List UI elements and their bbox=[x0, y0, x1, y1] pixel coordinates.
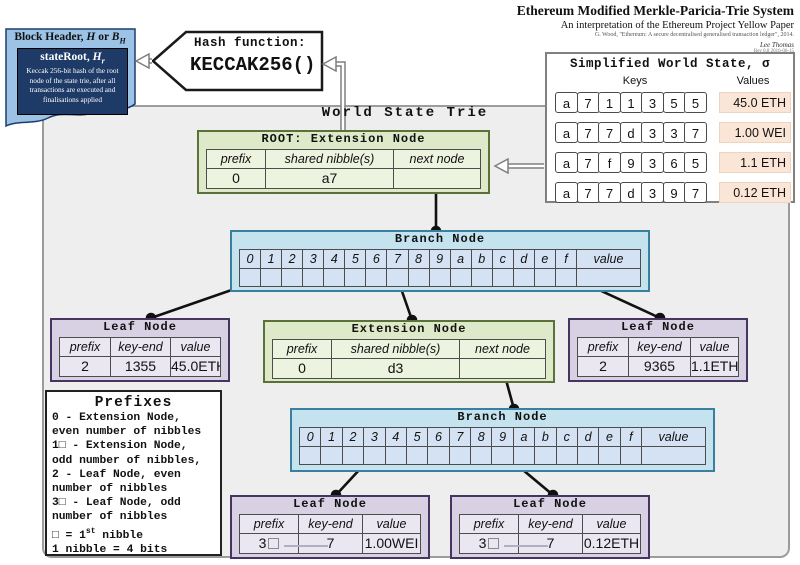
node-value-row bbox=[299, 447, 706, 465]
branch-2-value-9 bbox=[492, 447, 513, 465]
page-title: Ethereum Modified Merkle-Paricia-Trie Sy… bbox=[374, 3, 794, 19]
nibble-indicator-line bbox=[504, 545, 548, 547]
root-extension-value-0: 0 bbox=[206, 169, 266, 189]
key-nibble-cell: d bbox=[620, 182, 643, 203]
leaf-bottom-left-table: prefixkey-endvalue371.00WEI bbox=[239, 514, 421, 554]
key-nibble-cell: 7 bbox=[577, 92, 600, 113]
root-extension-col-shared nibble(s): shared nibble(s) bbox=[266, 149, 394, 169]
branch-2-value-4 bbox=[386, 447, 407, 465]
branch-1-col-0: 0 bbox=[239, 249, 261, 269]
branch-1-col-3: 3 bbox=[303, 249, 324, 269]
root-extension-table: prefixshared nibble(s)next node0a7 bbox=[206, 149, 481, 189]
key-nibble-cell: 3 bbox=[641, 92, 664, 113]
branch-1-col-c: c bbox=[493, 249, 514, 269]
key-nibble-cell: 5 bbox=[684, 92, 707, 113]
branch-2-col-3: 3 bbox=[364, 427, 385, 447]
node-header-row: 0123456789abcdefvalue bbox=[299, 427, 706, 447]
stateroot-description: Keccak 256-bit hash of the root node of … bbox=[18, 65, 127, 104]
branch-1-col-b: b bbox=[472, 249, 493, 269]
leaf-bottom-right-col-key-end: key-end bbox=[519, 514, 583, 534]
node-header-row: prefixkey-endvalue bbox=[577, 337, 739, 357]
extension-mid-value-2 bbox=[460, 359, 546, 379]
prefix-legend-line: 0 - Extension Node, bbox=[52, 411, 215, 425]
key-nibble-cell: 1 bbox=[598, 92, 621, 113]
branch-2-col-4: 4 bbox=[386, 427, 407, 447]
leaf-bottom-right-value-2: 0.12ETH bbox=[583, 534, 641, 554]
leaf-right-col-value: value bbox=[691, 337, 739, 357]
leaf-left-value-2: 45.0ETH bbox=[171, 357, 221, 377]
branch-2-value-13 bbox=[578, 447, 599, 465]
key-nibble-cell: 3 bbox=[641, 122, 664, 143]
key-nibble-cell: 1 bbox=[620, 92, 643, 113]
branch-2-value-2 bbox=[343, 447, 364, 465]
root-extension-title: ROOT: Extension Node bbox=[199, 132, 488, 149]
key-nibble-cell: 7 bbox=[577, 182, 600, 203]
leaf-bottom-left-col-key-end: key-end bbox=[299, 514, 363, 534]
world-state-row: a77d3371.00 WEI bbox=[555, 122, 791, 144]
leaf-bottom-right-title: Leaf Node bbox=[452, 497, 648, 514]
leaf-left-node: Leaf Nodeprefixkey-endvalue2135545.0ETH bbox=[50, 318, 230, 382]
leaf-bottom-left-node: Leaf Nodeprefixkey-endvalue371.00WEI bbox=[230, 495, 430, 559]
leaf-left-value-1: 1355 bbox=[111, 357, 171, 377]
world-state-row: a71135545.0 ETH bbox=[555, 92, 791, 114]
leaf-bottom-right-node: Leaf Nodeprefixkey-endvalue370.12ETH bbox=[450, 495, 650, 559]
key-cells: a77d397 bbox=[555, 182, 707, 203]
branch-1-col-e: e bbox=[535, 249, 556, 269]
leaf-left-table: prefixkey-endvalue2135545.0ETH bbox=[59, 337, 221, 377]
key-nibble-cell: a bbox=[555, 182, 578, 203]
node-header-row: prefixkey-endvalue bbox=[59, 337, 221, 357]
extension-mid-value-0: 0 bbox=[272, 359, 332, 379]
citation: G. Wood, "Ethereum: A secure decentralis… bbox=[374, 32, 794, 38]
branch-2-value-10 bbox=[514, 447, 535, 465]
leaf-left-title: Leaf Node bbox=[52, 320, 228, 337]
leaf-bottom-right-table: prefixkey-endvalue370.12ETH bbox=[459, 514, 641, 554]
leaf-left-col-prefix: prefix bbox=[59, 337, 111, 357]
key-nibble-cell: 7 bbox=[577, 152, 600, 173]
branch-2-col-b: b bbox=[535, 427, 556, 447]
key-nibble-cell: 7 bbox=[684, 182, 707, 203]
hash-to-stateroot-arrow bbox=[136, 54, 152, 68]
node-header-row: prefixkey-endvalue bbox=[459, 514, 641, 534]
branch-2-col-7: 7 bbox=[450, 427, 471, 447]
branch-2-col-e: e bbox=[599, 427, 620, 447]
account-value: 45.0 ETH bbox=[719, 92, 791, 113]
node-value-row: 293651.1ETH bbox=[577, 357, 739, 377]
branch-2-col-c: c bbox=[557, 427, 578, 447]
branch-1-col-f: f bbox=[556, 249, 577, 269]
key-nibble-cell: 9 bbox=[663, 182, 686, 203]
diagram-canvas: World State Trie Ethereum Modified Merkl… bbox=[0, 0, 800, 565]
node-value-row: 2135545.0ETH bbox=[59, 357, 221, 377]
key-nibble-cell: a bbox=[555, 92, 578, 113]
leaf-bottom-right-col-value: value bbox=[583, 514, 641, 534]
trie-label: World State Trie bbox=[290, 105, 520, 121]
leaf-right-title: Leaf Node bbox=[570, 320, 746, 337]
leaf-left-value-0: 2 bbox=[59, 357, 111, 377]
extension-mid-col-next node: next node bbox=[460, 339, 546, 359]
branch-1-value-4 bbox=[324, 269, 345, 287]
prefix-legend-line: number of nibbles bbox=[52, 510, 215, 524]
branch-1-value-5 bbox=[345, 269, 366, 287]
nibble-placeholder-square bbox=[488, 538, 499, 549]
branch-2-value-7 bbox=[450, 447, 471, 465]
key-cells: a711355 bbox=[555, 92, 707, 113]
page-subtitle: An interpretation of the Ethereum Projec… bbox=[374, 20, 794, 31]
branch-2-col-9: 9 bbox=[492, 427, 513, 447]
nibble-indicator-line bbox=[284, 545, 328, 547]
node-value-row: 0d3 bbox=[272, 359, 546, 379]
key-nibble-cell: 5 bbox=[663, 92, 686, 113]
key-nibble-cell: 7 bbox=[598, 122, 621, 143]
key-nibble-cell: 7 bbox=[577, 122, 600, 143]
key-nibble-cell: f bbox=[598, 152, 621, 173]
node-header-row: prefixshared nibble(s)next node bbox=[206, 149, 481, 169]
branch-1-value-8 bbox=[409, 269, 430, 287]
key-nibble-cell: a bbox=[555, 152, 578, 173]
prefixes-title: Prefixes bbox=[52, 395, 215, 411]
leaf-right-value-2: 1.1ETH bbox=[691, 357, 739, 377]
key-nibble-cell: 7 bbox=[598, 182, 621, 203]
branch-1-value-9 bbox=[430, 269, 451, 287]
branch-2-value-15 bbox=[621, 447, 642, 465]
branch-2-col-d: d bbox=[578, 427, 599, 447]
branch-1-col-d: d bbox=[514, 249, 535, 269]
author: Lee Thomas bbox=[374, 41, 794, 49]
key-nibble-cell: 9 bbox=[620, 152, 643, 173]
key-nibble-cell: 3 bbox=[641, 152, 664, 173]
prefix-legend-line: 2 - Leaf Node, even bbox=[52, 468, 215, 482]
extension-mid-node: Extension Nodeprefixshared nibble(s)next… bbox=[263, 320, 555, 383]
key-nibble-cell: d bbox=[620, 122, 643, 143]
key-nibble-cell: 6 bbox=[663, 152, 686, 173]
node-header-row: 0123456789abcdefvalue bbox=[239, 249, 641, 269]
worldstate-to-root-arrow bbox=[495, 159, 544, 173]
leaf-right-col-prefix: prefix bbox=[577, 337, 629, 357]
branch-1-col-a: a bbox=[451, 249, 472, 269]
branch-1-value-13 bbox=[514, 269, 535, 287]
branch-1-value-3 bbox=[303, 269, 324, 287]
nibble-placeholder-square bbox=[268, 538, 279, 549]
leaf-bottom-left-title: Leaf Node bbox=[232, 497, 428, 514]
leaf-bottom-right-col-prefix: prefix bbox=[459, 514, 519, 534]
prefix-legend-line: odd number of nibbles, bbox=[52, 454, 215, 468]
account-value: 0.12 ETH bbox=[719, 182, 791, 203]
prefixes-lines: 0 - Extension Node,even number of nibble… bbox=[52, 411, 215, 557]
key-nibble-cell: a bbox=[555, 122, 578, 143]
branch-1-col-1: 1 bbox=[261, 249, 282, 269]
world-state-panel: Simplified World State, σ Keys Values a7… bbox=[545, 52, 795, 203]
prefix-legend-line: 3□ - Leaf Node, odd bbox=[52, 496, 215, 510]
key-cells: a77d337 bbox=[555, 122, 707, 143]
block-header-or: or bbox=[95, 31, 111, 43]
prefix-legend-line: 1□ - Extension Node, bbox=[52, 439, 215, 453]
branch-2-value-0 bbox=[299, 447, 321, 465]
key-nibble-cell: 5 bbox=[684, 152, 707, 173]
root-extension-node: ROOT: Extension Nodeprefixshared nibble(… bbox=[197, 130, 490, 194]
prefix-legend-line: even number of nibbles bbox=[52, 425, 215, 439]
prefix-legend-line: □ = 1st nibble bbox=[52, 525, 215, 543]
branch-1-value-16 bbox=[577, 269, 641, 287]
leaf-left-col-key-end: key-end bbox=[111, 337, 171, 357]
root-extension-value-1: a7 bbox=[266, 169, 394, 189]
node-value-row bbox=[239, 269, 641, 287]
branch-1-title: Branch Node bbox=[232, 232, 648, 249]
branch-2-col-value: value bbox=[642, 427, 706, 447]
node-header-row: prefixkey-endvalue bbox=[239, 514, 421, 534]
branch-1-col-6: 6 bbox=[366, 249, 387, 269]
stateroot-title: stateRoot, Hr bbox=[18, 51, 127, 65]
node-value-row: 370.12ETH bbox=[459, 534, 641, 554]
node-value-row: 371.00WEI bbox=[239, 534, 421, 554]
branch-1-col-7: 7 bbox=[387, 249, 408, 269]
key-nibble-cell: 7 bbox=[684, 122, 707, 143]
leaf-bottom-right-value-0: 3 bbox=[459, 534, 519, 554]
root-extension-value-2 bbox=[394, 169, 481, 189]
leaf-left-col-value: value bbox=[171, 337, 221, 357]
branch-1-col-9: 9 bbox=[430, 249, 451, 269]
leaf-bottom-left-value-1: 7 bbox=[299, 534, 363, 554]
branch-1-value-6 bbox=[366, 269, 387, 287]
branch-2-col-0: 0 bbox=[299, 427, 321, 447]
stateroot-box: stateRoot, Hr Keccak 256-bit hash of the… bbox=[17, 48, 128, 115]
account-value: 1.1 ETH bbox=[719, 152, 791, 173]
extension-mid-title: Extension Node bbox=[265, 322, 553, 339]
branch-1-value-11 bbox=[472, 269, 493, 287]
key-cells: a7f9365 bbox=[555, 152, 707, 173]
leaf-right-col-key-end: key-end bbox=[629, 337, 691, 357]
extension-mid-col-shared nibble(s): shared nibble(s) bbox=[332, 339, 460, 359]
branch-1-node: Branch Node0123456789abcdefvalue bbox=[230, 230, 650, 292]
branch-1-col-5: 5 bbox=[345, 249, 366, 269]
hash-function-name: KECCAK256() bbox=[190, 54, 322, 76]
world-state-row: a7f93651.1 ETH bbox=[555, 152, 791, 174]
branch-1-value-14 bbox=[535, 269, 556, 287]
block-header-title-text: Block Header, bbox=[14, 31, 86, 43]
root-extension-col-prefix: prefix bbox=[206, 149, 266, 169]
branch-1-value-7 bbox=[387, 269, 408, 287]
world-state-row: a77d3970.12 ETH bbox=[555, 182, 791, 204]
branch-1-col-4: 4 bbox=[324, 249, 345, 269]
values-header: Values bbox=[717, 75, 789, 87]
leaf-bottom-left-value-2: 1.00WEI bbox=[363, 534, 421, 554]
extension-mid-value-1: d3 bbox=[332, 359, 460, 379]
hash-banner: Hash function: KECCAK256() bbox=[186, 36, 322, 76]
leaf-right-value-0: 2 bbox=[577, 357, 629, 377]
prefixes-legend: Prefixes 0 - Extension Node,even number … bbox=[45, 390, 222, 556]
keys-header: Keys bbox=[555, 75, 715, 87]
block-header-title: Block Header, H or BH bbox=[8, 31, 132, 45]
branch-2-value-5 bbox=[407, 447, 428, 465]
key-nibble-cell: 3 bbox=[641, 182, 664, 203]
hash-function-label: Hash function: bbox=[194, 36, 322, 50]
branch-1-value-1 bbox=[261, 269, 282, 287]
leaf-right-table: prefixkey-endvalue293651.1ETH bbox=[577, 337, 739, 377]
world-state-title: Simplified World State, σ bbox=[547, 57, 793, 71]
prefix-legend-line: number of nibbles bbox=[52, 482, 215, 496]
root-extension-col-next node: next node bbox=[394, 149, 481, 169]
branch-1-value-10 bbox=[451, 269, 472, 287]
branch-1-value-15 bbox=[556, 269, 577, 287]
branch-1-col-2: 2 bbox=[282, 249, 303, 269]
branch-1-value-2 bbox=[282, 269, 303, 287]
branch-1-value-0 bbox=[239, 269, 261, 287]
leaf-right-value-1: 9365 bbox=[629, 357, 691, 377]
branch-1-table: 0123456789abcdefvalue bbox=[239, 249, 641, 287]
branch-2-value-1 bbox=[321, 447, 342, 465]
extension-mid-col-prefix: prefix bbox=[272, 339, 332, 359]
leaf-bottom-left-col-value: value bbox=[363, 514, 421, 534]
branch-1-col-8: 8 bbox=[409, 249, 430, 269]
title-block: Ethereum Modified Merkle-Paricia-Trie Sy… bbox=[374, 3, 794, 54]
branch-2-value-8 bbox=[471, 447, 492, 465]
branch-1-value-12 bbox=[493, 269, 514, 287]
branch-1-col-value: value bbox=[577, 249, 641, 269]
account-value: 1.00 WEI bbox=[719, 122, 791, 143]
prefix-legend-line: 1 nibble = 4 bits bbox=[52, 543, 215, 557]
leaf-right-node: Leaf Nodeprefixkey-endvalue293651.1ETH bbox=[568, 318, 748, 382]
branch-2-col-6: 6 bbox=[428, 427, 449, 447]
extension-mid-table: prefixshared nibble(s)next node0d3 bbox=[272, 339, 546, 379]
key-nibble-cell: 3 bbox=[663, 122, 686, 143]
branch-2-value-16 bbox=[642, 447, 706, 465]
node-value-row: 0a7 bbox=[206, 169, 481, 189]
branch-2-value-12 bbox=[557, 447, 578, 465]
branch-2-title: Branch Node bbox=[292, 410, 713, 427]
branch-2-node: Branch Node0123456789abcdefvalue bbox=[290, 408, 715, 472]
branch-2-col-8: 8 bbox=[471, 427, 492, 447]
branch-2-value-3 bbox=[364, 447, 385, 465]
leaf-bottom-right-value-1: 7 bbox=[519, 534, 583, 554]
branch-2-value-14 bbox=[599, 447, 620, 465]
branch-2-col-f: f bbox=[621, 427, 642, 447]
node-header-row: prefixshared nibble(s)next node bbox=[272, 339, 546, 359]
branch-2-col-2: 2 bbox=[343, 427, 364, 447]
branch-2-col-5: 5 bbox=[407, 427, 428, 447]
branch-2-value-6 bbox=[428, 447, 449, 465]
branch-2-value-11 bbox=[535, 447, 556, 465]
branch-2-col-1: 1 bbox=[321, 427, 342, 447]
branch-2-col-a: a bbox=[514, 427, 535, 447]
block-header-b: BH bbox=[112, 31, 126, 43]
leaf-bottom-left-col-prefix: prefix bbox=[239, 514, 299, 534]
branch-2-table: 0123456789abcdefvalue bbox=[299, 427, 706, 465]
leaf-bottom-left-value-0: 3 bbox=[239, 534, 299, 554]
